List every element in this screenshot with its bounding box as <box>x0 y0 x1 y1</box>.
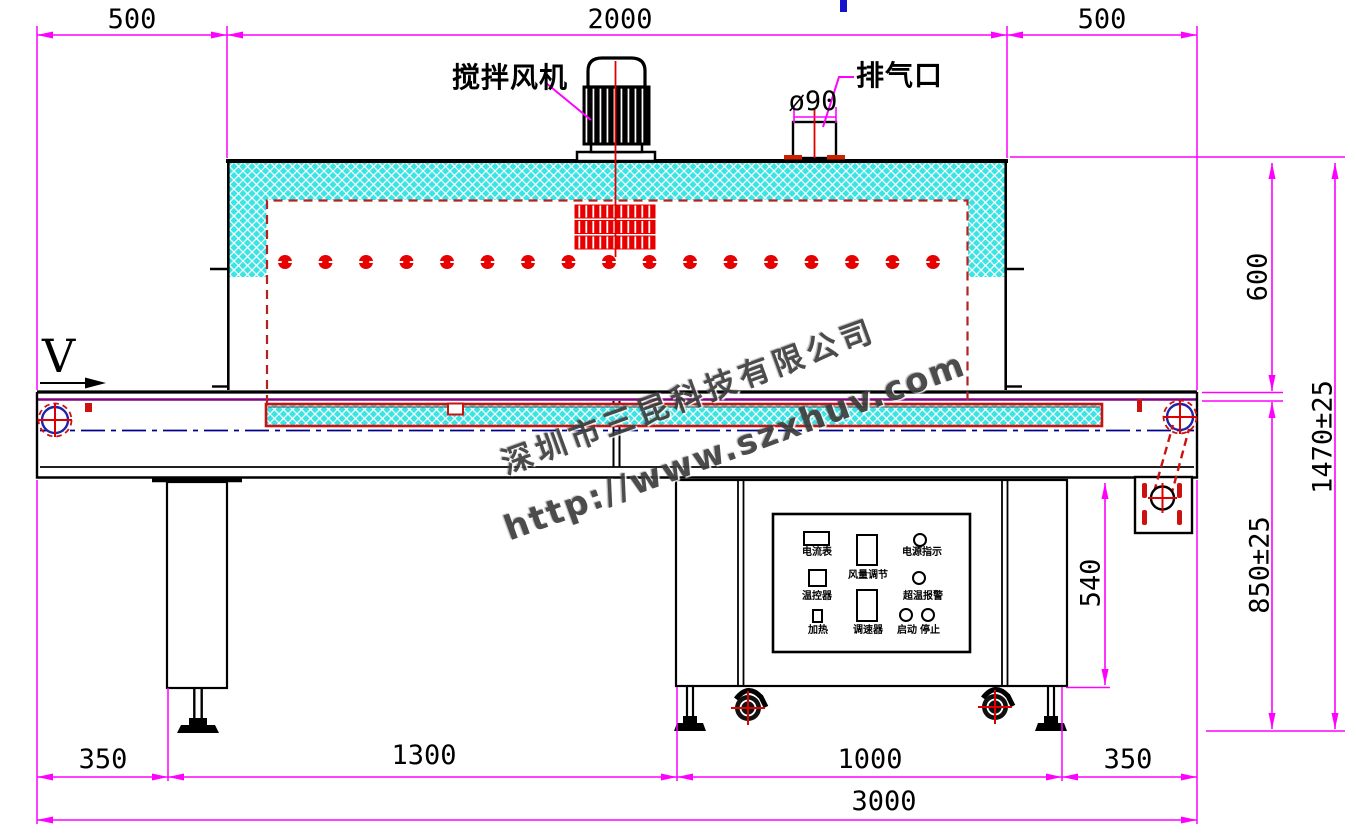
ammeter-meter <box>803 531 830 546</box>
dim-exhaust-diameter: ø90 <box>789 88 838 115</box>
heating-indicator <box>812 609 823 623</box>
power-indicator-label: 电源指示 <box>902 548 942 558</box>
stop-label: 停止 <box>920 626 940 636</box>
insulation-right <box>968 200 1006 277</box>
caster-right <box>978 689 1013 724</box>
temp-controller-meter[interactable] <box>808 569 827 587</box>
ammeter-label: 电流表 <box>802 548 832 558</box>
stir-fan-label: 搅拌风机 <box>452 64 568 92</box>
left-leg <box>152 480 242 733</box>
temp-controller-label: 温控器 <box>802 592 832 602</box>
dim-oven-height: 600 <box>1245 253 1272 302</box>
insulation-top <box>229 163 1005 201</box>
right-roller <box>1163 400 1197 434</box>
dim-belt-height: 850±25 <box>1247 516 1274 614</box>
belt-direction-label: V <box>42 333 75 379</box>
dim-bottom-1: 350 <box>79 746 128 773</box>
dim-bottom-4: 350 <box>1104 746 1153 773</box>
dim-top-left: 500 <box>108 6 157 33</box>
left-roller <box>38 403 72 437</box>
airflow-adjust-label: 风量调节 <box>848 571 888 581</box>
dim-bottom-2: 1300 <box>391 742 456 769</box>
dim-overall-height: 1470±25 <box>1310 380 1337 494</box>
dim-overall-length: 3000 <box>851 788 916 815</box>
start-label: 启动 <box>897 626 917 636</box>
blue-top-mark <box>840 0 847 12</box>
stop-button[interactable] <box>921 608 935 622</box>
insulation-left <box>229 200 267 277</box>
speed-controller-label: 调速器 <box>853 626 883 636</box>
power-indicator-lamp <box>913 533 927 547</box>
belt-drive-unit <box>1135 425 1192 533</box>
speed-controller-knob[interactable] <box>856 589 878 622</box>
dim-bottom-3: 1000 <box>837 746 902 773</box>
alarm-lamp <box>912 571 926 585</box>
caster-left <box>731 690 766 725</box>
heating-label: 加热 <box>808 626 828 636</box>
dim-cabinet-height: 540 <box>1078 559 1105 608</box>
start-button[interactable] <box>899 608 913 622</box>
technical-drawing-canvas: 500 2000 500 350 1300 1000 350 3000 600 … <box>0 0 1356 833</box>
overtemp-alarm-label: 超温报警 <box>903 592 943 602</box>
dim-top-center: 2000 <box>587 6 652 33</box>
airflow-adjust-knob[interactable] <box>856 534 878 566</box>
heater-dots <box>278 255 940 269</box>
exhaust-port-label: 排气口 <box>856 62 943 90</box>
dim-top-right: 500 <box>1078 6 1127 33</box>
